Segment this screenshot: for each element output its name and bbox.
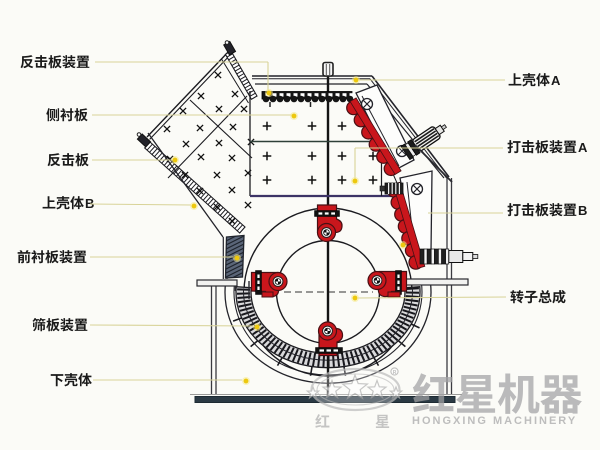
svg-text:A: A (578, 140, 588, 155)
svg-text:A: A (551, 73, 561, 88)
svg-text:HONGXING MACHINERY: HONGXING MACHINERY (412, 415, 577, 427)
svg-text:B: B (578, 203, 587, 218)
svg-text:R: R (393, 370, 397, 376)
